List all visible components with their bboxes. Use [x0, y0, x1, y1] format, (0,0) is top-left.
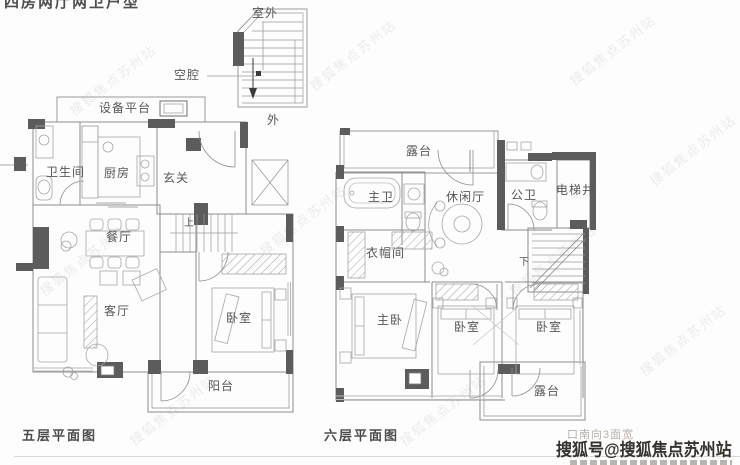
label-public-bath: 公卫: [511, 189, 537, 202]
label-cloakroom: 衣帽间: [366, 247, 405, 260]
label-balcony: 阳台: [208, 380, 234, 393]
label-stair-down: 下: [519, 257, 529, 268]
floor6-ac-unit: [409, 373, 421, 384]
floor5-outdoor-stair: [207, 9, 307, 107]
label-leisure-hall: 休闲厅: [446, 191, 485, 204]
label-cavity: 空腔: [174, 69, 200, 82]
label-exterior: 外: [267, 114, 280, 127]
label-master-bath: 主卫: [368, 191, 394, 204]
label-foyer: 玄关: [163, 172, 189, 185]
label-terrace-top: 露台: [406, 145, 432, 158]
label-equipment-platform: 设备平台: [99, 102, 151, 115]
floor6-duct: [507, 142, 517, 150]
label-kitchen: 厨房: [104, 167, 130, 180]
label-dining: 餐厅: [106, 231, 132, 244]
label-living: 客厅: [104, 305, 130, 318]
floor5-elevator-core: [252, 160, 288, 205]
label-bedroom-f5: 卧室: [226, 312, 252, 325]
cut-text-strip: [570, 460, 732, 465]
caption-floor5: 五层平面图: [22, 425, 97, 444]
label-bedroom-a: 卧室: [454, 321, 480, 334]
page-title: 四房两厅两卫户型: [4, 0, 140, 12]
floor5-ac-unit: [101, 366, 114, 375]
caption-floor6: 六层平面图: [324, 425, 399, 444]
label-elevator-shaft: 电梯井: [556, 184, 595, 197]
floor5-doors: [60, 131, 235, 401]
floorplan-page: 搜狐焦点苏州站 搜狐焦点苏州站 搜狐焦点苏州站 搜狐焦点苏州站 搜狐焦点苏州站 …: [0, 0, 740, 465]
label-outdoor: 室外: [252, 7, 278, 20]
sohu-watermark: 搜狐号@搜狐焦点苏州站: [556, 435, 732, 461]
label-stair-up: 上: [184, 218, 194, 229]
floor6-stairs: [530, 234, 586, 292]
floor6-duct: [521, 142, 531, 150]
label-terrace-bottom: 露台: [534, 385, 560, 398]
floor5-stairs-mid: [170, 214, 238, 252]
label-master-bedroom: 主卧: [377, 314, 403, 327]
floor5-wall-fills: [14, 119, 293, 378]
floor5-windows: [33, 282, 291, 371]
label-bedroom-b: 卧室: [536, 321, 562, 334]
label-bathroom: 卫生间: [46, 166, 85, 179]
